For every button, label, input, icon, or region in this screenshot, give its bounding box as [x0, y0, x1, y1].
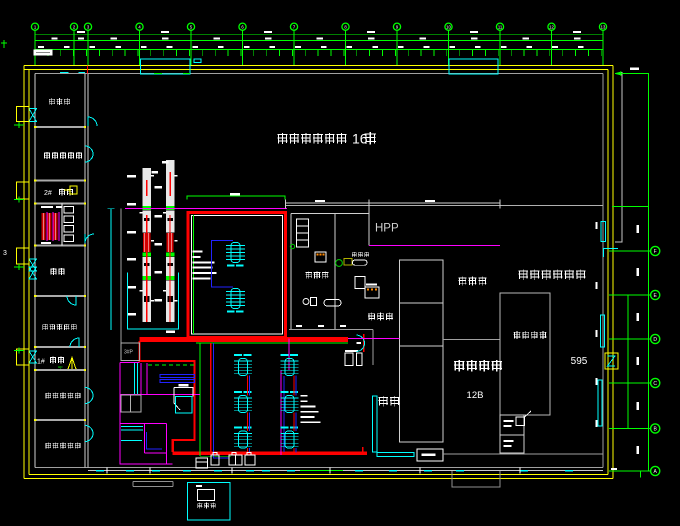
- svg-text:13: 13: [601, 24, 606, 29]
- svg-text:C: C: [653, 381, 657, 387]
- svg-text:HPP: HPP: [375, 223, 399, 235]
- svg-text:595: 595: [571, 356, 588, 367]
- svg-text:3#P: 3#P: [124, 350, 134, 356]
- svg-text:2#: 2#: [44, 190, 52, 197]
- svg-text:12B: 12B: [467, 390, 484, 401]
- svg-text:3: 3: [3, 250, 7, 257]
- svg-text:up: up: [58, 364, 63, 369]
- svg-text:D: D: [653, 337, 657, 343]
- svg-text:1#: 1#: [37, 359, 45, 366]
- svg-text:10: 10: [446, 24, 451, 29]
- svg-text:11: 11: [498, 24, 503, 29]
- svg-text:12: 12: [549, 24, 554, 29]
- svg-text:F: F: [654, 249, 657, 255]
